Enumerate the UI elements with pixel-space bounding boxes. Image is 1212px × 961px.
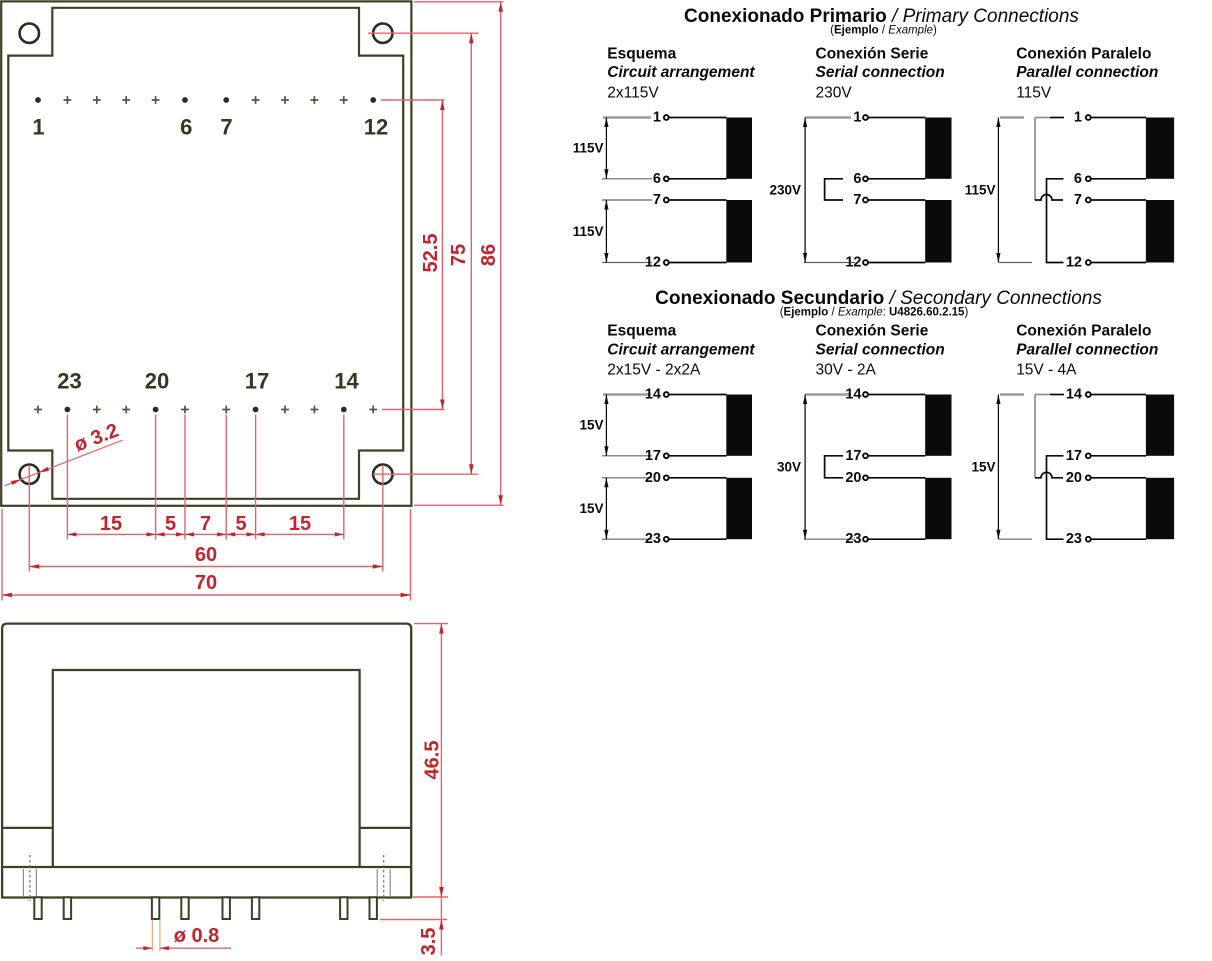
svg-text:23: 23 [645, 531, 661, 547]
svg-text:1: 1 [32, 114, 44, 139]
svg-text:Conexión Serie: Conexión Serie [816, 45, 929, 62]
svg-text:2x15V - 2x2A: 2x15V - 2x2A [607, 362, 701, 379]
svg-text:6: 6 [853, 171, 861, 187]
svg-text:1: 1 [853, 110, 861, 126]
svg-text:86: 86 [478, 244, 500, 266]
svg-text:20: 20 [145, 369, 169, 394]
svg-text:7: 7 [653, 192, 661, 208]
svg-text:20: 20 [1066, 470, 1082, 486]
svg-text:23: 23 [1066, 531, 1082, 547]
svg-text:14: 14 [334, 369, 359, 394]
svg-text:(Ejemplo / Example): (Ejemplo / Example) [830, 25, 937, 37]
svg-text:1: 1 [653, 110, 661, 126]
svg-text:15: 15 [100, 513, 122, 535]
svg-text:Parallel connection: Parallel connection [1016, 64, 1158, 81]
svg-text:12: 12 [1066, 255, 1082, 271]
svg-text:7: 7 [1074, 192, 1082, 208]
svg-text:7: 7 [200, 513, 211, 535]
svg-text:Conexión Serie: Conexión Serie [816, 323, 929, 340]
svg-text:14: 14 [1066, 387, 1082, 403]
svg-text:Conexión Paralelo: Conexión Paralelo [1016, 45, 1151, 62]
svg-text:17: 17 [245, 369, 269, 394]
svg-text:20: 20 [645, 470, 661, 486]
svg-text:Conexionado Primario / Primary: Conexionado Primario / Primary Connectio… [684, 6, 1079, 27]
svg-text:2x115V: 2x115V [607, 84, 659, 101]
svg-text:Parallel connection: Parallel connection [1016, 341, 1158, 358]
svg-text:14: 14 [845, 387, 861, 403]
svg-text:6: 6 [653, 171, 661, 187]
svg-text:75: 75 [448, 244, 470, 266]
svg-text:6: 6 [1074, 171, 1082, 187]
svg-text:20: 20 [845, 470, 861, 486]
svg-text:230V: 230V [769, 183, 801, 198]
svg-text:15V: 15V [971, 459, 995, 474]
svg-text:3.5: 3.5 [418, 928, 440, 956]
svg-text:15V - 4A: 15V - 4A [1016, 362, 1077, 379]
svg-text:115V: 115V [573, 141, 604, 156]
svg-text:Serial connection: Serial connection [816, 341, 945, 358]
svg-text:23: 23 [845, 531, 861, 547]
svg-text:70: 70 [195, 572, 217, 594]
svg-text:(Ejemplo / Example: U4826.60.2: (Ejemplo / Example: U4826.60.2.15) [780, 307, 969, 319]
svg-text:5: 5 [235, 513, 246, 535]
svg-text:17: 17 [845, 448, 861, 464]
svg-text:115V: 115V [965, 183, 996, 198]
svg-text:Circuit arrangement: Circuit arrangement [607, 341, 755, 358]
svg-text:46.5: 46.5 [422, 741, 444, 780]
svg-text:30V - 2A: 30V - 2A [816, 362, 877, 379]
svg-text:7: 7 [220, 114, 232, 139]
svg-text:15: 15 [289, 513, 311, 535]
svg-text:60: 60 [195, 544, 217, 566]
svg-text:23: 23 [57, 369, 81, 394]
svg-text:12: 12 [364, 114, 388, 139]
svg-text:7: 7 [853, 192, 861, 208]
svg-text:12: 12 [845, 255, 861, 271]
svg-text:1: 1 [1074, 110, 1082, 126]
svg-text:6: 6 [180, 114, 192, 139]
svg-text:15V: 15V [579, 418, 603, 433]
svg-text:52.5: 52.5 [420, 234, 442, 273]
svg-text:115V: 115V [573, 224, 604, 239]
svg-text:Esquema: Esquema [607, 323, 676, 340]
svg-text:ø 0.8: ø 0.8 [174, 925, 220, 947]
svg-text:Serial connection: Serial connection [816, 64, 945, 81]
svg-text:Circuit arrangement: Circuit arrangement [607, 64, 755, 81]
svg-text:30V: 30V [777, 459, 801, 474]
svg-text:5: 5 [165, 513, 176, 535]
svg-text:12: 12 [645, 255, 661, 271]
svg-text:Conexionado Secundario / Secon: Conexionado Secundario / Secondary Conne… [655, 288, 1102, 309]
svg-text:17: 17 [1066, 448, 1082, 464]
svg-text:230V: 230V [816, 84, 853, 101]
svg-text:14: 14 [645, 387, 661, 403]
svg-text:115V: 115V [1016, 84, 1052, 101]
svg-text:Conexión Paralelo: Conexión Paralelo [1016, 323, 1151, 340]
svg-text:Esquema: Esquema [607, 45, 676, 62]
svg-text:15V: 15V [579, 501, 603, 516]
svg-text:17: 17 [645, 448, 661, 464]
